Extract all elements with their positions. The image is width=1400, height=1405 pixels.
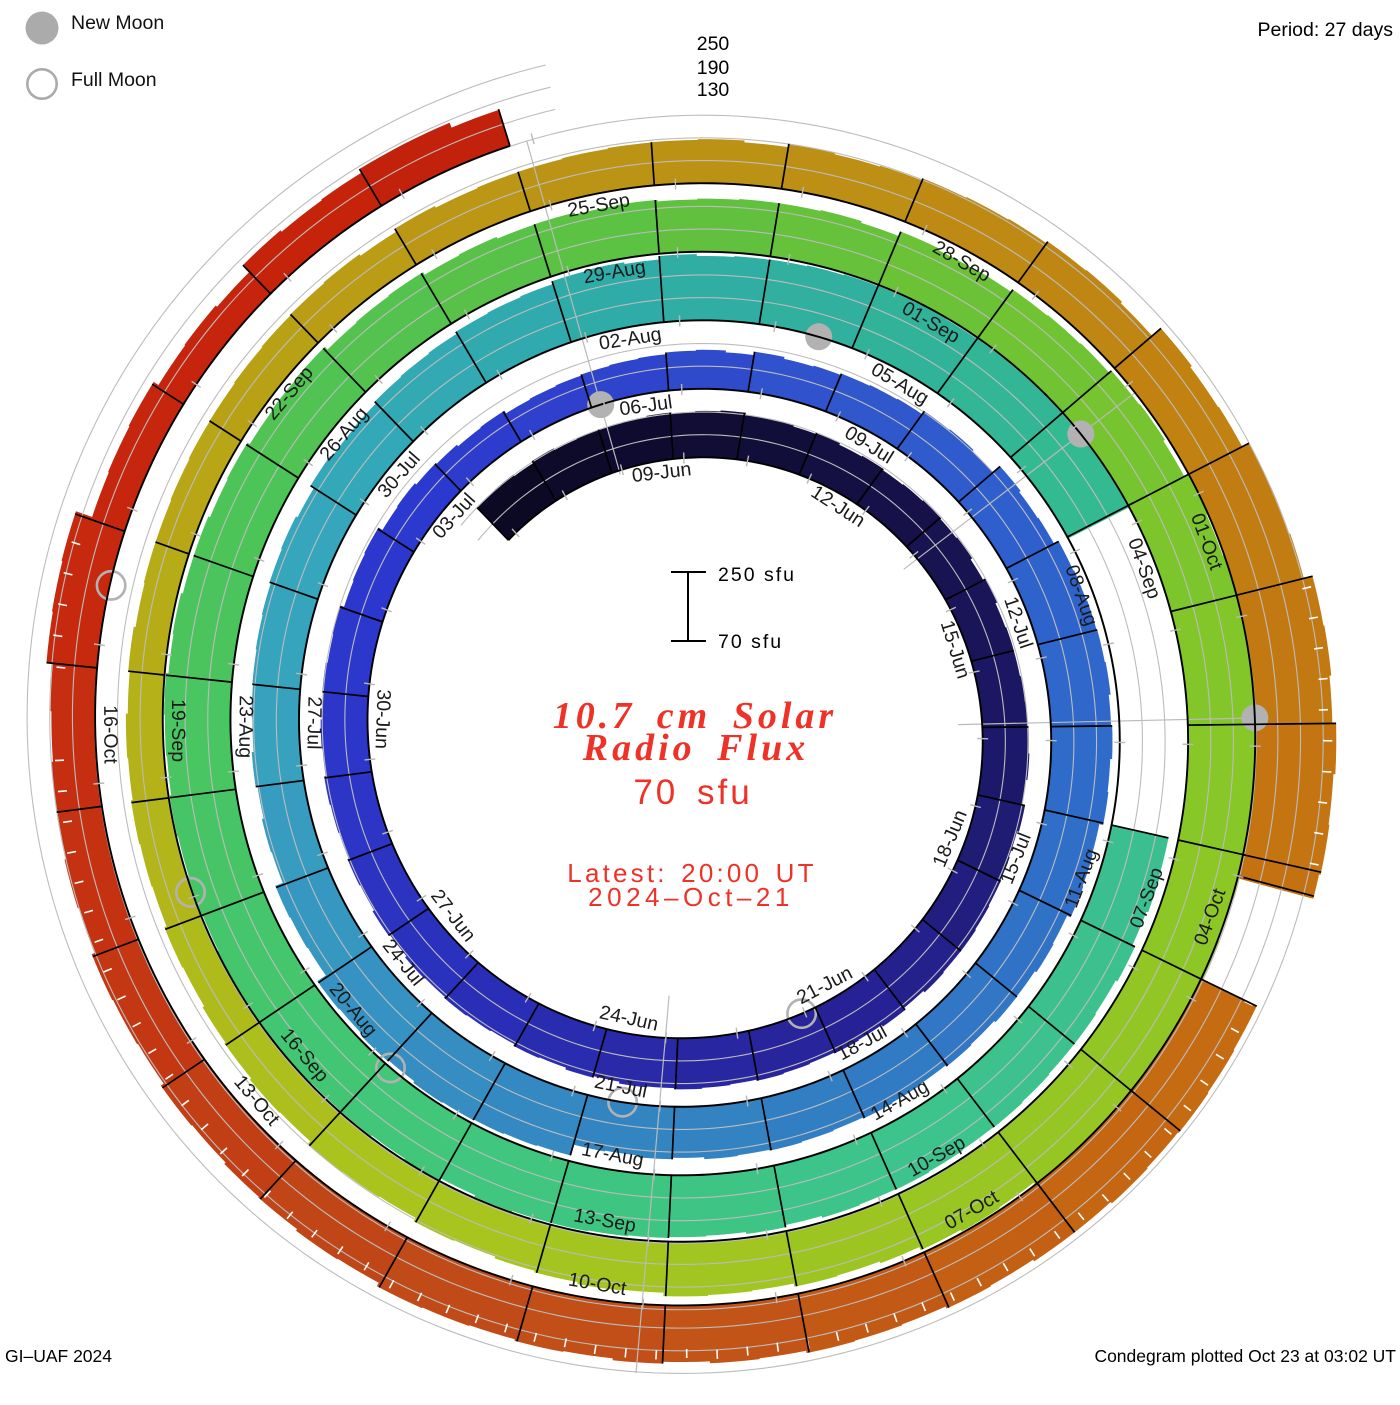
svg-text:70 sfu: 70 sfu (633, 773, 752, 812)
svg-text:70 sfu: 70 sfu (718, 631, 783, 653)
svg-text:Full Moon: Full Moon (71, 69, 157, 91)
svg-text:250: 250 (697, 33, 730, 55)
svg-text:23-Aug: 23-Aug (234, 695, 257, 758)
svg-text:27-Jul: 27-Jul (302, 696, 325, 750)
svg-text:Radio Flux: Radio Flux (582, 727, 809, 769)
svg-text:2024–Oct–21: 2024–Oct–21 (588, 882, 794, 912)
svg-text:Period: 27 days: Period: 27 days (1257, 19, 1393, 41)
svg-text:190: 190 (697, 57, 730, 79)
svg-text:Condegram plotted Oct 23 at 03: Condegram plotted Oct 23 at 03:02 UT (1094, 1346, 1396, 1366)
svg-text:130: 130 (697, 79, 730, 101)
svg-text:19-Sep: 19-Sep (167, 699, 189, 762)
svg-text:GI–UAF 2024: GI–UAF 2024 (5, 1346, 112, 1366)
svg-text:New Moon: New Moon (71, 12, 164, 34)
svg-text:30-Jun: 30-Jun (370, 689, 394, 749)
svg-text:16-Oct: 16-Oct (99, 705, 121, 764)
svg-text:250 sfu: 250 sfu (718, 564, 796, 586)
